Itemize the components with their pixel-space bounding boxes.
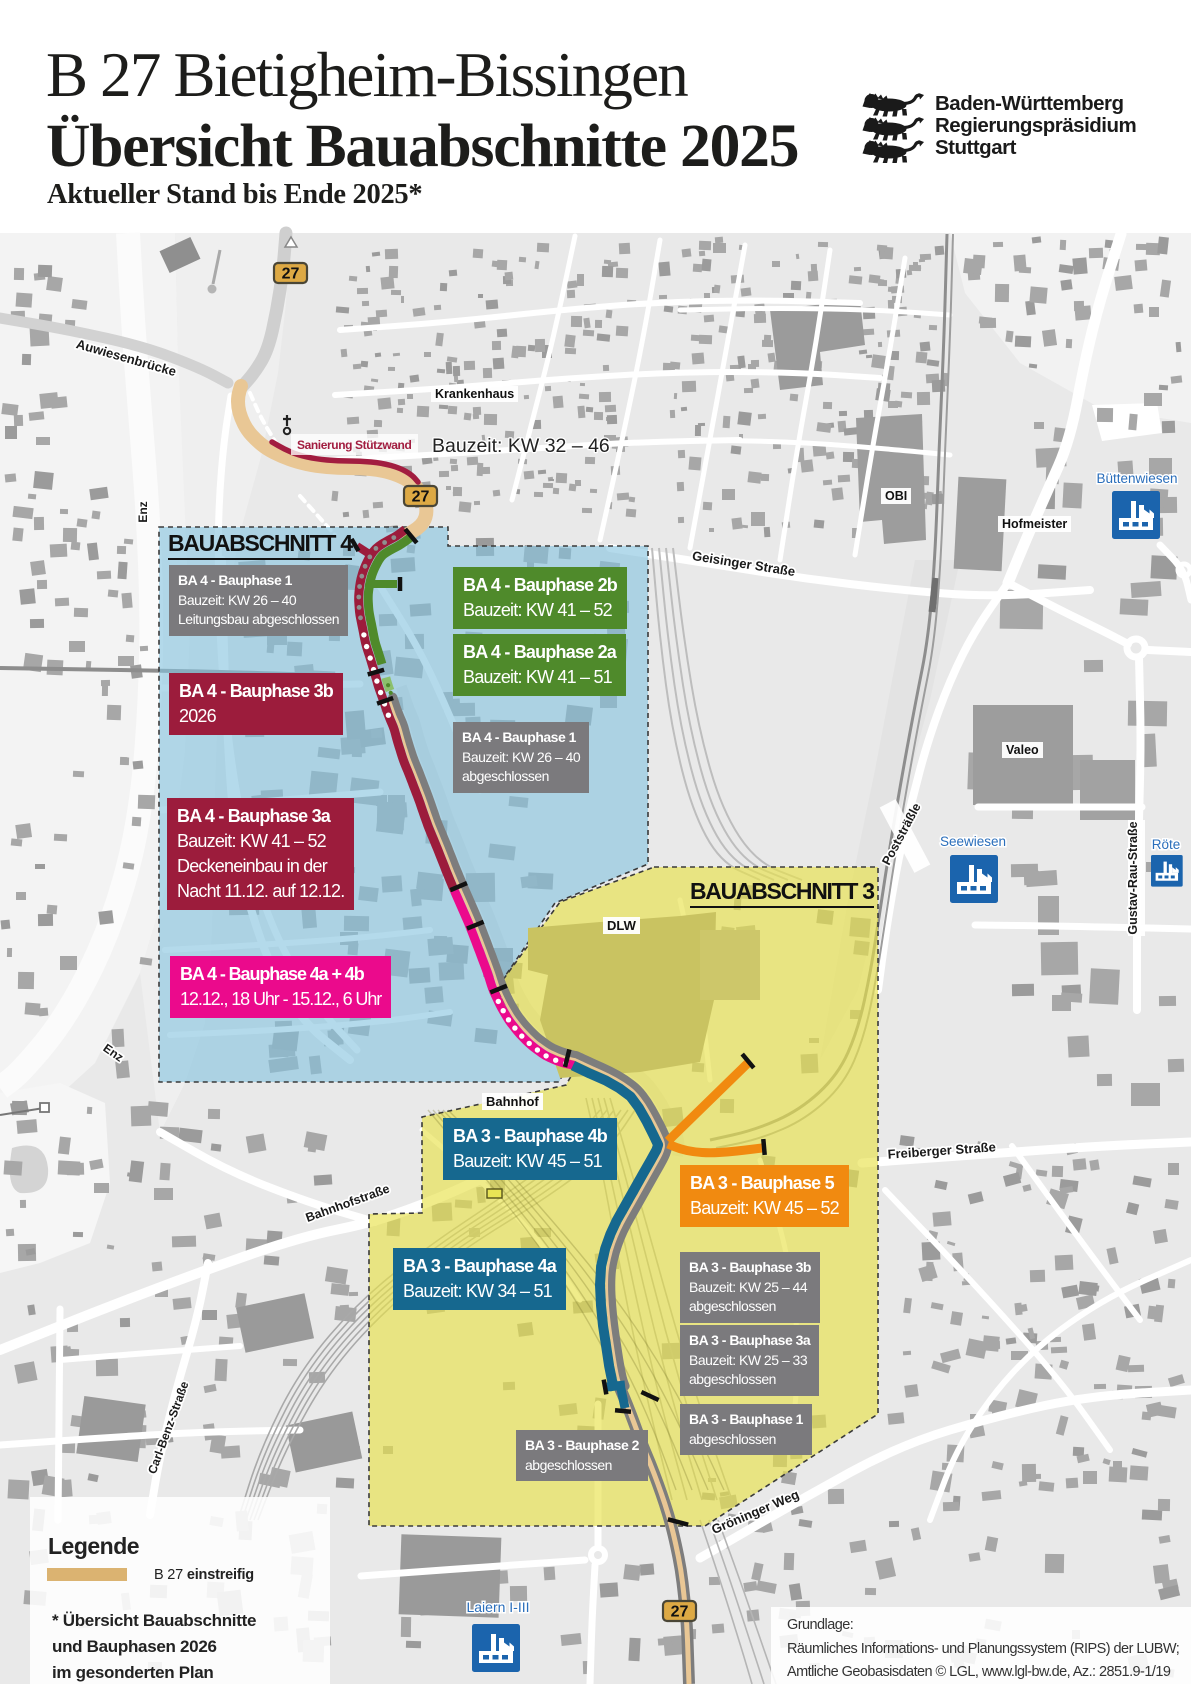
svg-text:Sanierung Stützwand: Sanierung Stützwand (297, 438, 411, 452)
svg-text:Büttenwiesen: Büttenwiesen (1096, 471, 1177, 486)
svg-text:Enz: Enz (136, 501, 150, 522)
svg-text:27: 27 (671, 1604, 689, 1621)
svg-text:Laiern I-III: Laiern I-III (466, 1599, 529, 1615)
svg-text:Gustav-Rau-Straße: Gustav-Rau-Straße (1126, 821, 1140, 934)
svg-text:27: 27 (282, 266, 300, 283)
svg-text:Röte: Röte (1152, 837, 1181, 852)
svg-text:Seewiesen: Seewiesen (940, 834, 1006, 849)
svg-text:27: 27 (412, 489, 430, 506)
svg-text:Bauzeit: KW 32 – 46: Bauzeit: KW 32 – 46 (432, 435, 610, 457)
